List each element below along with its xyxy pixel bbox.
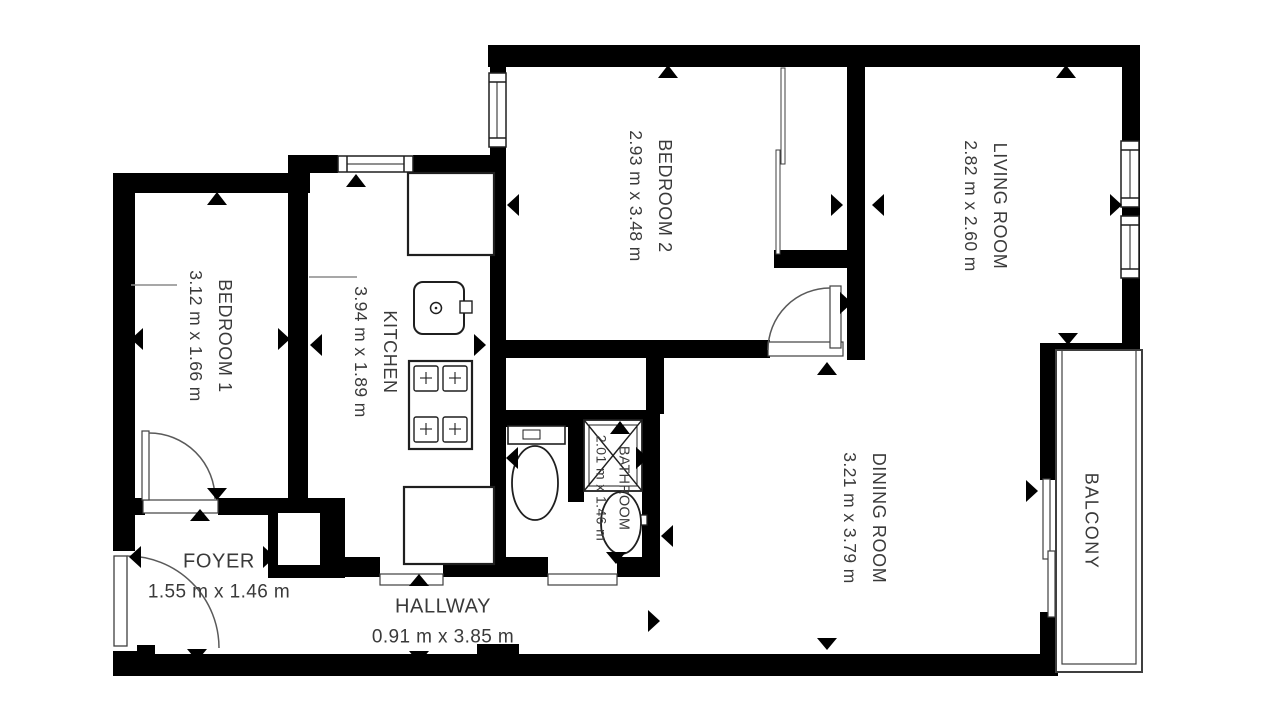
dimension-arrow-icon [207, 192, 227, 205]
kitchen-label: KITCHEN 3.94 m x 1.89 m [346, 286, 404, 417]
sliding-door-icon [1048, 551, 1055, 617]
wall [490, 45, 506, 75]
window-icon [489, 73, 506, 147]
wall [617, 557, 660, 577]
wall-closet-bottom [774, 250, 847, 268]
living-room-label: LIVING ROOM 2.82 m x 2.60 m [956, 140, 1014, 271]
wall [113, 173, 135, 555]
dimension-arrow-icon [506, 447, 518, 469]
wall [113, 654, 1058, 676]
dimension-arrow-icon [831, 194, 843, 216]
bedroom2-dims: 2.93 m x 3.48 m [621, 130, 649, 261]
bathroom-dims: 2.01 m x 1.46 m [591, 435, 612, 541]
dimension-arrow-icon [346, 174, 366, 187]
toilet-icon [508, 426, 565, 520]
living-room-dims: 2.82 m x 2.60 m [956, 140, 984, 271]
dining-room-label: DINING ROOM 3.21 m x 3.79 m [835, 452, 893, 583]
kitchen-name: KITCHEN [375, 310, 404, 393]
wall [345, 557, 380, 577]
foyer-dims: 1.55 m x 1.46 m [148, 578, 290, 609]
bathroom-name: BATHROOM [612, 446, 634, 530]
dimension-arrow-icon [474, 334, 486, 356]
sliding-door-icon [776, 68, 785, 254]
kitchen-counter [408, 173, 494, 255]
dimension-arrow-icon [1026, 480, 1038, 502]
door-swing-icon [142, 431, 215, 500]
dining-room-name: DINING ROOM [864, 453, 893, 584]
dimension-arrow-icon [1110, 194, 1122, 216]
bedroom1-label: BEDROOM 1 3.12 m x 1.66 m [181, 270, 239, 401]
wall [646, 356, 664, 414]
threshold [548, 574, 617, 585]
dimension-arrow-icon [661, 525, 673, 547]
threshold [143, 500, 218, 513]
window-icon [338, 156, 413, 172]
window-icon [1121, 216, 1139, 278]
door-swing-icon [768, 286, 841, 350]
dimension-arrow-icon [872, 194, 884, 216]
floor-plan: BEDROOM 1 3.12 m x 1.66 m KITCHEN 3.94 m… [0, 0, 1280, 720]
living-room-name: LIVING ROOM [985, 143, 1014, 270]
dimension-arrow-icon [817, 362, 837, 375]
dining-room-dims: 3.21 m x 3.79 m [835, 452, 863, 583]
wall [113, 173, 310, 193]
foyer-name: FOYER [183, 545, 255, 577]
balcony-label: BALCONY [1076, 473, 1105, 570]
wall [847, 67, 865, 360]
wall [488, 45, 1140, 67]
wall [505, 340, 770, 358]
wall [288, 155, 338, 173]
wall [113, 498, 145, 515]
bedroom1-dims: 3.12 m x 1.66 m [181, 270, 209, 401]
hallway-name: HALLWAY [395, 590, 491, 622]
hallway-dims: 0.91 m x 3.85 m [372, 623, 514, 654]
kitchen-dims: 3.94 m x 1.89 m [346, 286, 374, 417]
kitchen-fixtures [404, 173, 494, 564]
kitchen-sink-icon [414, 282, 472, 334]
dimension-arrow-icon [507, 194, 519, 216]
window-icon [1121, 141, 1139, 207]
wall [568, 410, 584, 502]
wall [642, 410, 660, 563]
dimension-arrow-icon [648, 610, 660, 632]
bedroom2-name: BEDROOM 2 [650, 139, 679, 252]
balcony-name: BALCONY [1076, 473, 1105, 570]
stove-icon [409, 361, 472, 449]
hallway-label: HALLWAY 0.91 m x 3.85 m [372, 590, 514, 653]
radiator-lines [131, 277, 357, 285]
sliding-door-icon [1043, 479, 1050, 559]
kitchen-cabinet [404, 487, 494, 564]
foyer-label: FOYER 1.55 m x 1.46 m [148, 545, 290, 608]
bathroom-label: BATHROOM 2.01 m x 1.46 m [591, 435, 634, 541]
bedroom2-label: BEDROOM 2 2.93 m x 3.48 m [621, 130, 679, 261]
bedroom1-name: BEDROOM 1 [210, 279, 239, 392]
wall [288, 155, 308, 513]
dimension-arrow-icon [310, 334, 322, 356]
dimension-arrow-icon [817, 638, 837, 650]
